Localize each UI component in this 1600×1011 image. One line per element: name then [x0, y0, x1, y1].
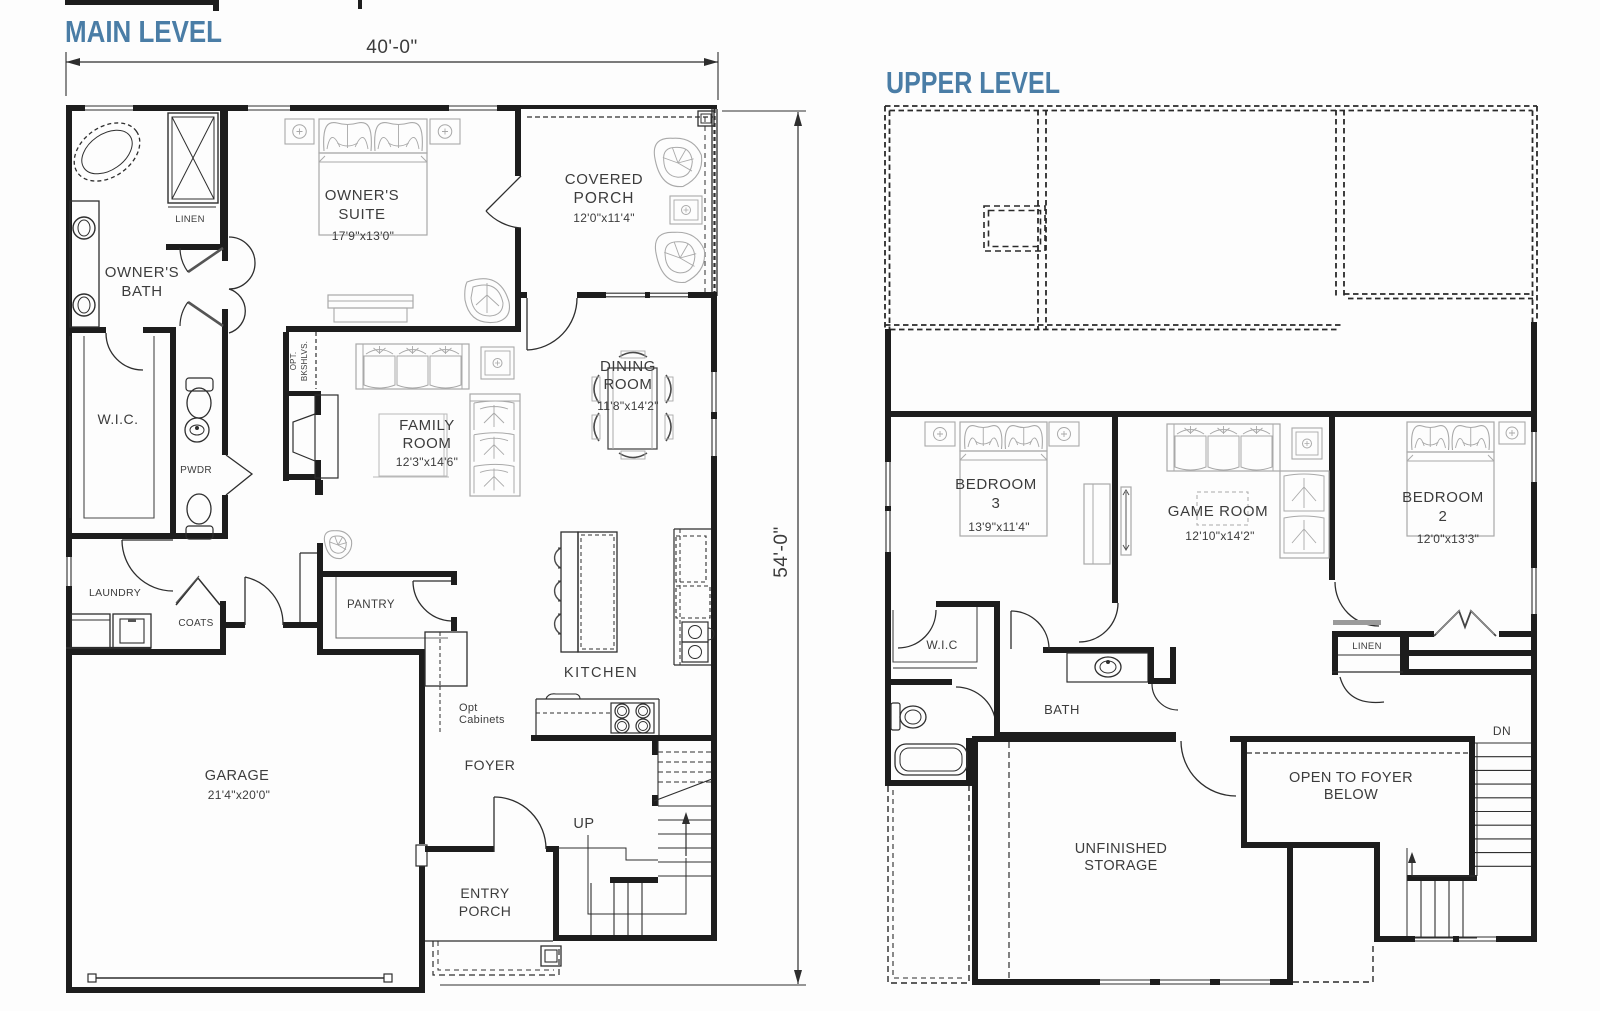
svg-text:OWNER'S: OWNER'S	[325, 187, 400, 204]
svg-text:GAME ROOM: GAME ROOM	[1168, 503, 1268, 520]
svg-text:21'4"x20'0": 21'4"x20'0"	[208, 788, 270, 802]
svg-text:FOYER: FOYER	[465, 757, 516, 773]
svg-text:COVERED: COVERED	[565, 171, 643, 188]
svg-text:11'8"x14'2": 11'8"x14'2"	[597, 399, 659, 413]
svg-text:LINEN: LINEN	[1352, 641, 1381, 652]
svg-text:BELOW: BELOW	[1324, 787, 1378, 803]
svg-text:Cabinets: Cabinets	[459, 714, 505, 726]
svg-text:OWNER'S: OWNER'S	[105, 264, 180, 281]
svg-text:LINEN: LINEN	[175, 214, 204, 225]
svg-text:GARAGE: GARAGE	[205, 768, 269, 784]
svg-text:W.I.C: W.I.C	[926, 638, 957, 652]
svg-text:OPEN TO FOYER: OPEN TO FOYER	[1289, 770, 1413, 786]
svg-text:SUITE: SUITE	[338, 206, 385, 223]
svg-text:3: 3	[992, 495, 1001, 512]
svg-text:W.I.C.: W.I.C.	[97, 411, 138, 427]
svg-text:12'0"x13'3": 12'0"x13'3"	[1417, 532, 1479, 546]
svg-text:DN: DN	[1493, 724, 1511, 738]
svg-text:Opt: Opt	[459, 702, 478, 714]
svg-text:KITCHEN: KITCHEN	[564, 665, 638, 681]
svg-text:UP: UP	[573, 816, 594, 832]
svg-text:MAIN LEVEL: MAIN LEVEL	[65, 14, 222, 49]
svg-text:UNFINISHED: UNFINISHED	[1075, 841, 1168, 857]
svg-text:ENTRY: ENTRY	[460, 885, 509, 901]
svg-text:2: 2	[1439, 508, 1448, 525]
svg-text:PANTRY: PANTRY	[347, 599, 395, 611]
svg-text:12'10"x14'2": 12'10"x14'2"	[1185, 529, 1254, 543]
svg-text:DINING: DINING	[600, 358, 656, 375]
svg-text:BATH: BATH	[1044, 702, 1080, 717]
svg-text:ROOM: ROOM	[603, 376, 652, 393]
svg-text:PORCH: PORCH	[574, 190, 635, 207]
svg-text:BKSHLVS.: BKSHLVS.	[300, 341, 309, 381]
svg-text:13'9"x11'4": 13'9"x11'4"	[968, 520, 1030, 534]
svg-text:ROOM: ROOM	[402, 435, 451, 452]
svg-text:LAUNDRY: LAUNDRY	[89, 587, 141, 599]
svg-text:BATH: BATH	[121, 283, 162, 300]
svg-text:PORCH: PORCH	[459, 903, 512, 919]
svg-text:40'-0": 40'-0"	[366, 37, 417, 58]
svg-text:BEDROOM: BEDROOM	[955, 476, 1037, 493]
svg-text:12'0"x11'4": 12'0"x11'4"	[573, 211, 635, 225]
svg-text:UPPER LEVEL: UPPER LEVEL	[886, 65, 1060, 100]
svg-text:OPT.: OPT.	[289, 352, 298, 371]
svg-text:54'-0": 54'-0"	[771, 526, 792, 577]
svg-text:BEDROOM: BEDROOM	[1402, 489, 1484, 506]
svg-text:STORAGE: STORAGE	[1084, 858, 1157, 874]
svg-text:FAMILY: FAMILY	[399, 417, 455, 434]
svg-text:12'3"x14'6": 12'3"x14'6"	[396, 455, 458, 469]
svg-text:17'9"x13'0": 17'9"x13'0"	[332, 229, 394, 243]
svg-text:PWDR: PWDR	[180, 465, 212, 476]
svg-text:COATS: COATS	[178, 618, 213, 629]
